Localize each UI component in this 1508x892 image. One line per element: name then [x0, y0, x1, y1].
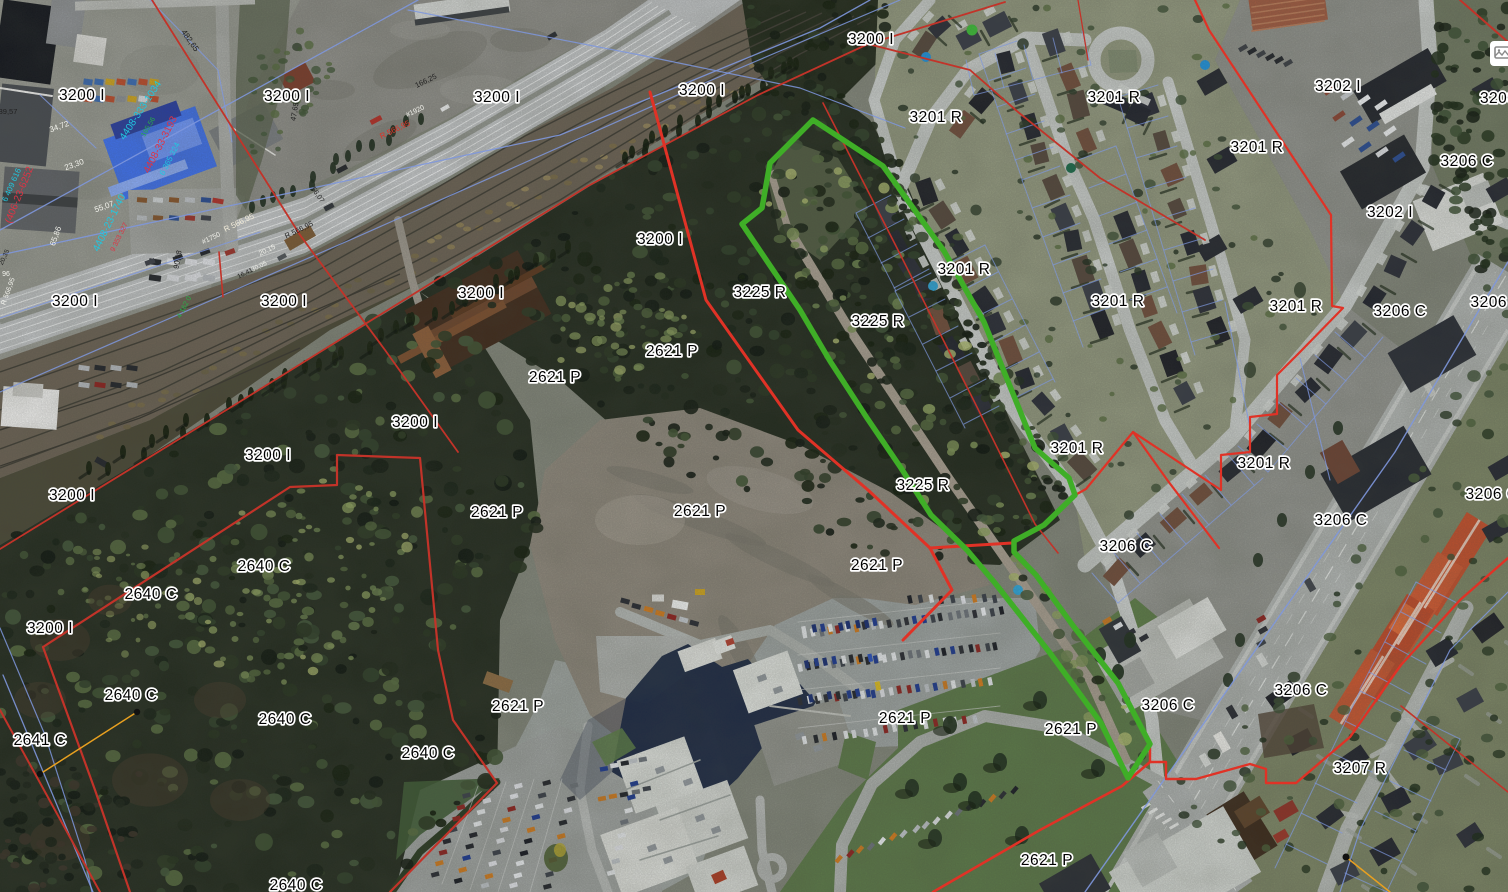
- svg-text:3207 R: 3207 R: [1334, 760, 1387, 777]
- svg-text:3200 I: 3200 I: [52, 293, 98, 310]
- svg-text:3201 R: 3201 R: [1231, 139, 1284, 156]
- svg-text:3200 I: 3200 I: [458, 285, 504, 302]
- svg-text:2640 C: 2640 C: [238, 558, 291, 575]
- svg-text:2640 C: 2640 C: [105, 687, 158, 704]
- svg-text:3206 C: 3206 C: [1374, 303, 1427, 320]
- svg-text:2640 C: 2640 C: [270, 877, 323, 892]
- svg-text:3225 R: 3225 R: [897, 477, 950, 494]
- svg-text:2621 P: 2621 P: [879, 710, 931, 727]
- svg-text:3200 I: 3200 I: [679, 82, 725, 99]
- svg-text:3200 I: 3200 I: [392, 414, 438, 431]
- svg-text:3201 R: 3201 R: [1270, 298, 1323, 315]
- svg-text:3201 R: 3201 R: [910, 109, 963, 126]
- svg-text:3200 I: 3200 I: [848, 31, 894, 48]
- svg-text:3200 I: 3200 I: [27, 620, 73, 637]
- svg-text:96: 96: [2, 271, 10, 278]
- svg-text:2621 P: 2621 P: [851, 557, 903, 574]
- svg-text:2621 P: 2621 P: [471, 504, 523, 521]
- svg-text:3200 I: 3200 I: [474, 89, 520, 106]
- svg-text:2621 P: 2621 P: [674, 503, 726, 520]
- svg-text:3206 C: 3206 C: [1275, 682, 1328, 699]
- svg-text:2641 C: 2641 C: [14, 732, 67, 749]
- svg-text:2640 C: 2640 C: [259, 711, 312, 728]
- svg-text:3206 C: 3206 C: [1142, 697, 1195, 714]
- svg-text:3201 R: 3201 R: [938, 261, 991, 278]
- svg-text:2640 C: 2640 C: [402, 745, 455, 762]
- svg-text:3202 I: 3202 I: [1367, 204, 1413, 221]
- svg-text:3206 C: 3206 C: [1471, 294, 1508, 311]
- svg-text:3201 R: 3201 R: [1088, 89, 1141, 106]
- svg-text:3202 I: 3202 I: [1315, 78, 1361, 95]
- svg-text:2621 P: 2621 P: [492, 698, 544, 715]
- svg-text:2621 P: 2621 P: [646, 343, 698, 360]
- svg-text:3200 I: 3200 I: [49, 487, 95, 504]
- svg-text:3201 R: 3201 R: [1092, 293, 1145, 310]
- svg-text:2621 P: 2621 P: [529, 369, 581, 386]
- svg-text:3200 I: 3200 I: [59, 87, 105, 104]
- svg-text:3200 I: 3200 I: [245, 447, 291, 464]
- svg-text:3206 C: 3206 C: [1466, 486, 1508, 503]
- svg-text:3200 I: 3200 I: [261, 293, 307, 310]
- svg-text:39,57: 39,57: [0, 107, 17, 116]
- svg-text:3201 R: 3201 R: [1238, 455, 1291, 472]
- svg-text:3206 C: 3206 C: [1100, 538, 1153, 555]
- svg-text:3200 I: 3200 I: [637, 231, 683, 248]
- svg-text:3206 C: 3206 C: [1315, 512, 1368, 529]
- svg-text:3225 R: 3225 R: [852, 313, 905, 330]
- svg-text:3201 R: 3201 R: [1051, 440, 1104, 457]
- svg-text:3225 R: 3225 R: [734, 284, 787, 301]
- svg-text:3206 C: 3206 C: [1441, 153, 1494, 170]
- svg-text:2621 P: 2621 P: [1021, 852, 1073, 869]
- svg-text:2621 P: 2621 P: [1045, 721, 1097, 738]
- svg-text:3200 I: 3200 I: [1480, 90, 1508, 107]
- svg-text:3200 I: 3200 I: [264, 88, 310, 105]
- svg-text:2640 C: 2640 C: [125, 586, 178, 603]
